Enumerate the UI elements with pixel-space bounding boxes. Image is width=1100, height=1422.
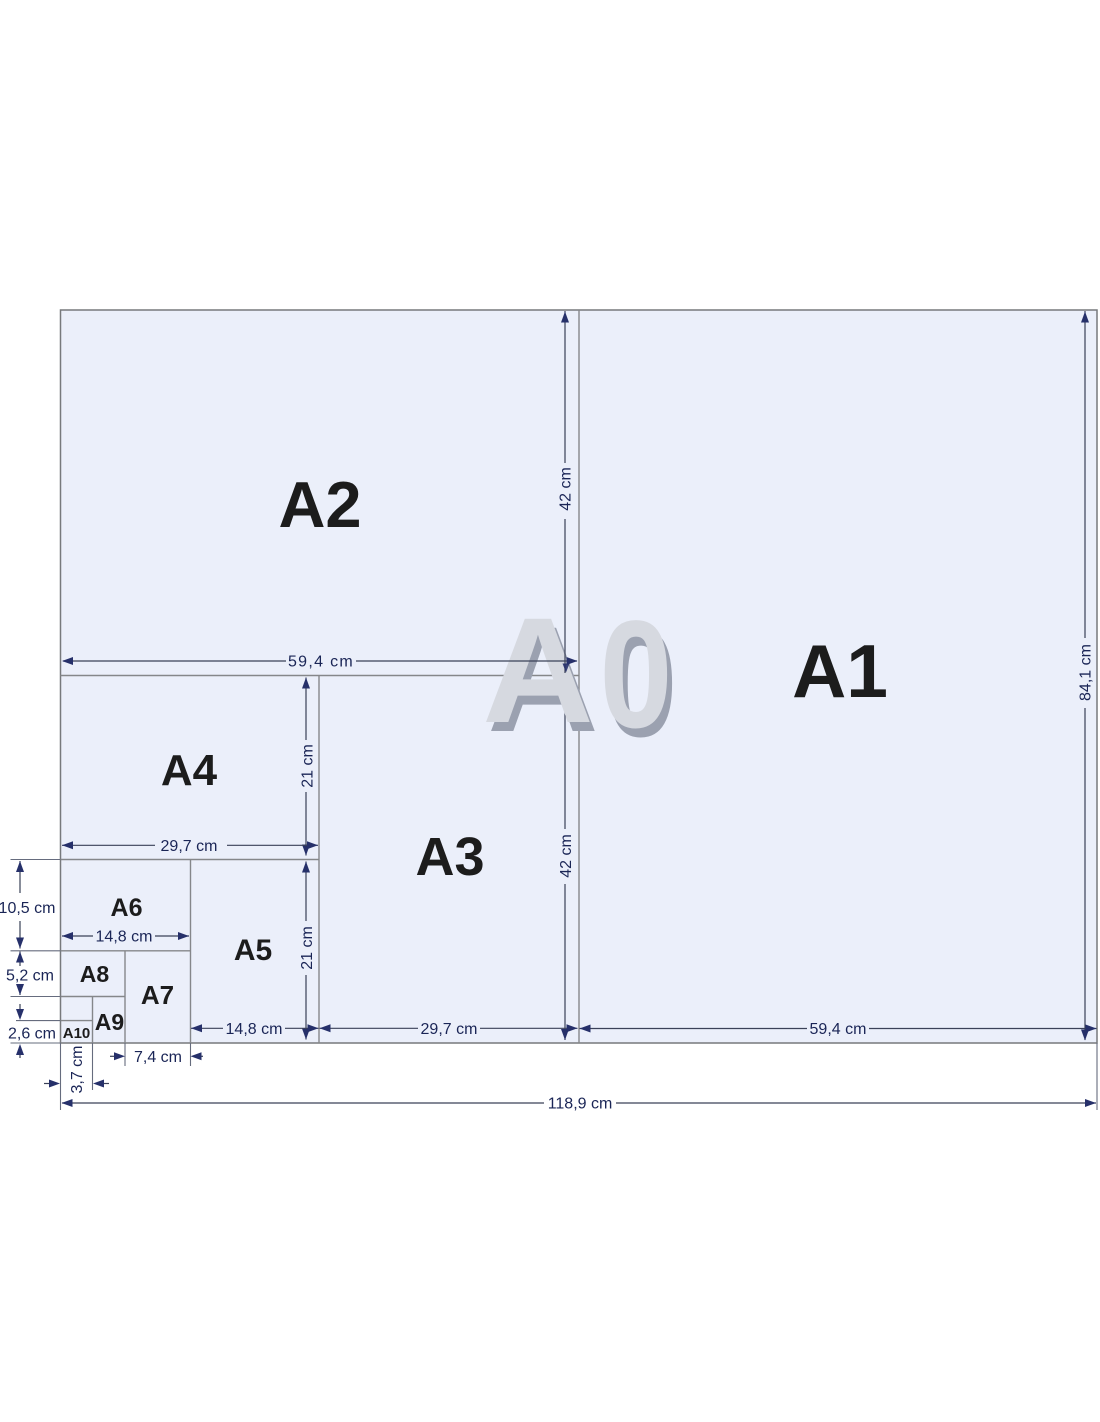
svg-text:29,7 cm: 29,7 cm — [161, 838, 218, 855]
svg-text:2,6 cm: 2,6 cm — [8, 1026, 56, 1043]
svg-text:42 cm: 42 cm — [558, 467, 575, 511]
svg-text:5,2 cm: 5,2 cm — [6, 968, 54, 985]
svg-text:A6: A6 — [111, 894, 143, 922]
svg-text:14,8 cm: 14,8 cm — [96, 929, 153, 946]
svg-text:84,1 cm: 84,1 cm — [1078, 644, 1095, 701]
svg-text:7,4 cm: 7,4 cm — [134, 1049, 182, 1066]
svg-text:118,9 cm: 118,9 cm — [548, 1096, 613, 1113]
svg-text:42 cm: 42 cm — [558, 834, 575, 878]
svg-text:A3: A3 — [415, 827, 484, 887]
svg-text:59,4 cm: 59,4 cm — [288, 654, 354, 671]
svg-text:14,8 cm: 14,8 cm — [226, 1021, 283, 1038]
svg-text:0: 0 — [600, 590, 673, 761]
svg-text:A7: A7 — [141, 980, 174, 1010]
svg-text:A1: A1 — [792, 629, 888, 713]
svg-text:A2: A2 — [278, 468, 361, 541]
svg-text:3,7 cm: 3,7 cm — [69, 1045, 86, 1093]
svg-text:21 cm: 21 cm — [300, 744, 317, 788]
svg-text:21 cm: 21 cm — [299, 926, 316, 970]
svg-text:A9: A9 — [95, 1009, 124, 1035]
svg-text:A: A — [482, 587, 594, 754]
svg-text:A8: A8 — [80, 961, 110, 987]
svg-text:A4: A4 — [161, 746, 218, 795]
svg-text:10,5 cm: 10,5 cm — [0, 900, 55, 917]
svg-text:A5: A5 — [234, 934, 272, 967]
svg-text:29,7 cm: 29,7 cm — [421, 1021, 478, 1038]
svg-text:59,4 cm: 59,4 cm — [810, 1021, 867, 1038]
svg-text:A10: A10 — [63, 1025, 91, 1042]
